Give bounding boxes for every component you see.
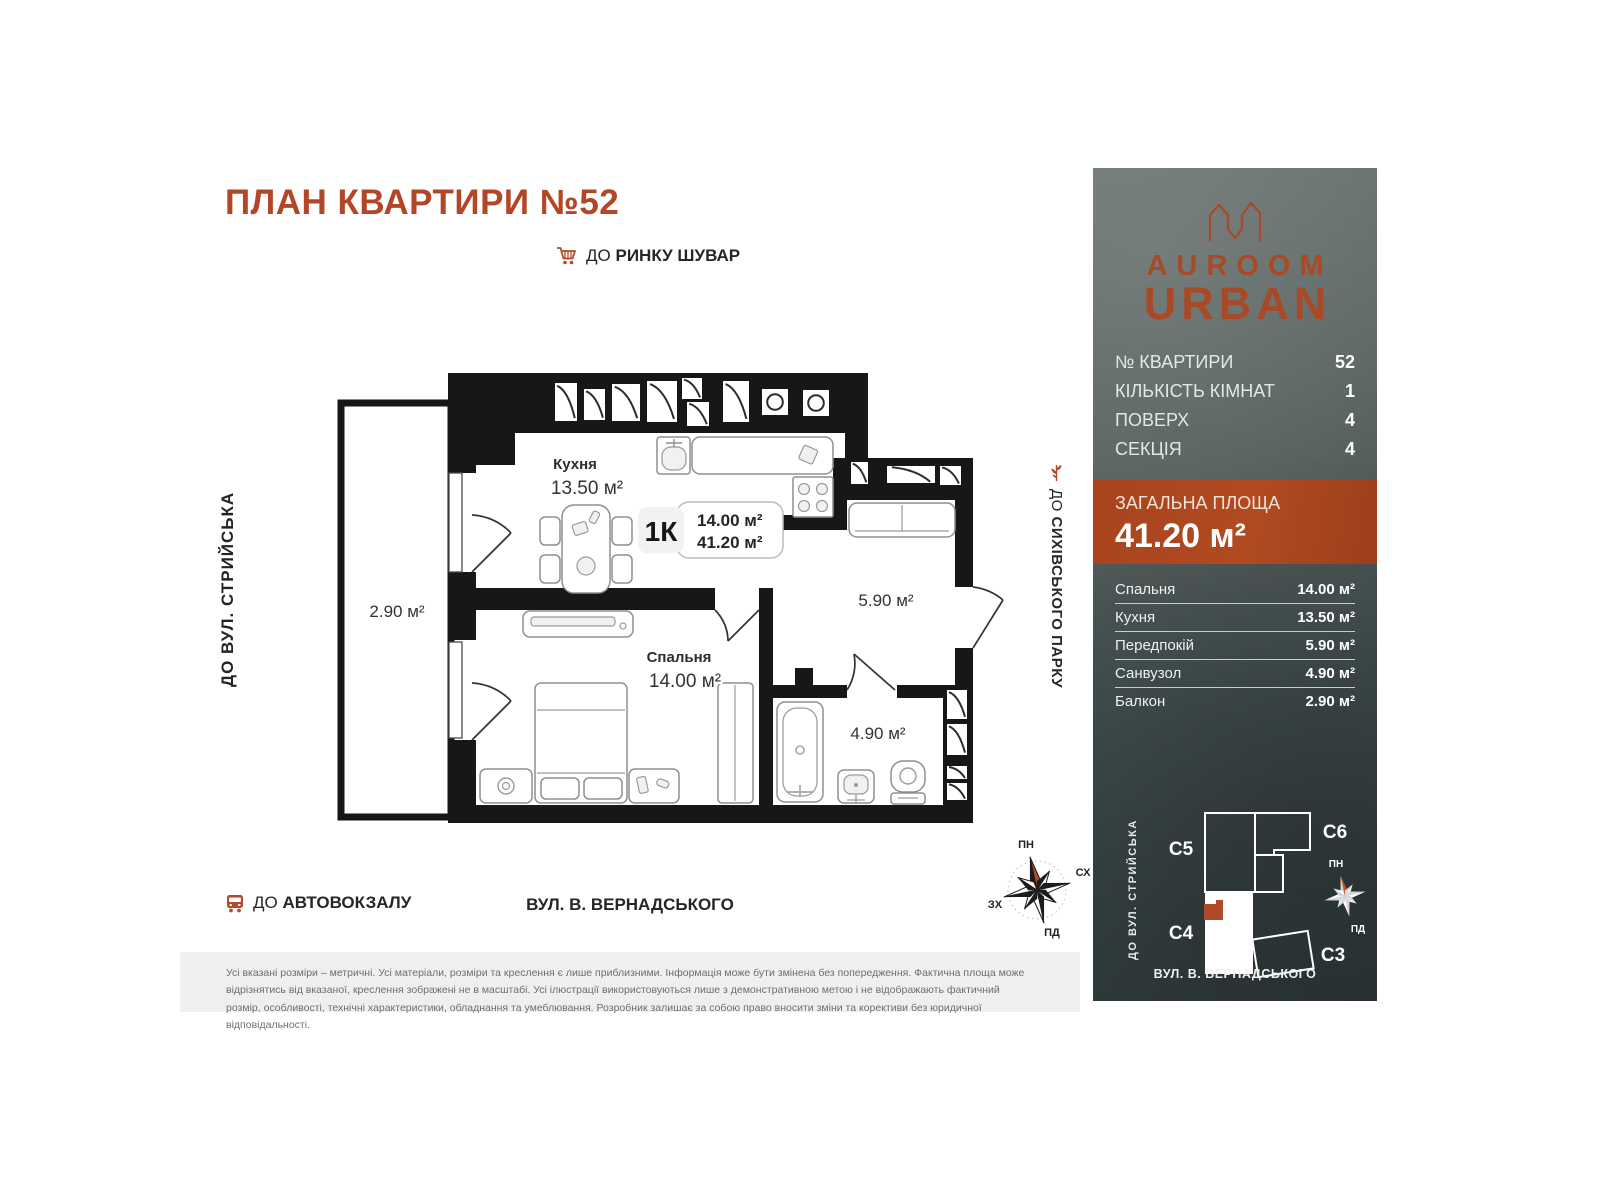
info-label: СЕКЦІЯ [1115, 439, 1182, 460]
kitchen-label: Кухня [553, 456, 597, 473]
floor-plan: 1К 14.00 м² 41.20 м² Кухня 13.50 м² Спал… [335, 365, 1015, 850]
nightstand [629, 769, 679, 803]
room-value: 5.90 м² [1306, 637, 1355, 654]
bedroom-area-label: 14.00 м² [649, 671, 721, 692]
courtyard-shape [1255, 855, 1283, 892]
toilet [891, 761, 925, 792]
room-areas-list: Спальня14.00 м² Кухня13.50 м² Передпокій… [1115, 576, 1355, 715]
compass-south-label: ПД [1044, 927, 1060, 939]
room-row: Спальня14.00 м² [1115, 576, 1355, 604]
bathroom-furniture [777, 702, 925, 804]
sitemap-compass-north: ПН [1329, 859, 1343, 870]
entrance-door [973, 600, 1003, 648]
direction-park: ДО СИХІВСЬКОГО ПАРКУ [1048, 462, 1065, 688]
info-label: ПОВЕРХ [1115, 410, 1189, 431]
info-row-floor: ПОВЕРХ4 [1115, 410, 1355, 439]
pillow [541, 778, 579, 799]
room-row: Кухня13.50 м² [1115, 604, 1355, 632]
room-label: Санвузол [1115, 665, 1181, 682]
total-area-band: ЗАГАЛЬНА ПЛОЩА 41.20 м² [1093, 480, 1377, 564]
street-label-bottom: ВУЛ. В. ВЕРНАДСЬКОГО [470, 895, 790, 915]
brand-name-bottom: URBAN [1093, 278, 1377, 330]
compass-east-label: СХ [1076, 867, 1092, 879]
sitemap-compass-south: ПД [1351, 924, 1365, 935]
room-label: Кухня [1115, 609, 1155, 626]
section-c6-label: C6 [1323, 822, 1347, 843]
info-value: 1 [1345, 381, 1355, 402]
direction-bus-name: АВТОВОКЗАЛУ [282, 893, 411, 912]
chair [540, 555, 560, 583]
pillow [584, 778, 622, 799]
direction-market: ДО РИНКУ ШУВАР [556, 246, 740, 266]
total-area-label: ЗАГАЛЬНА ПЛОЩА [1115, 493, 1355, 514]
info-label: КІЛЬКІСТЬ КІМНАТ [1115, 381, 1275, 402]
direction-bus: ДО АВТОВОКЗАЛУ [225, 893, 411, 913]
leaf-icon [1049, 462, 1064, 482]
bath-area-label: 4.90 м² [850, 724, 905, 743]
bus-icon [225, 894, 245, 913]
site-map: C5 C6 C4 C3 ПН ПД [1093, 808, 1377, 988]
room-value: 2.90 м² [1306, 693, 1355, 710]
bedroom-furniture [480, 611, 753, 803]
room-row: Передпокій5.90 м² [1115, 632, 1355, 660]
info-value: 4 [1345, 410, 1355, 431]
nightstand [480, 769, 532, 803]
room-row: Балкон2.90 м² [1115, 688, 1355, 715]
kitchen-area-label: 13.50 м² [551, 478, 623, 499]
hall-furniture [849, 503, 955, 537]
room-row: Санвузол4.90 м² [1115, 660, 1355, 688]
street-label-left: ДО ВУЛ. СТРИЙСЬКА [218, 502, 238, 687]
plan-type-badge: 1К [645, 516, 679, 547]
total-area-value: 41.20 м² [1115, 517, 1355, 556]
compass-rose: ПН СХ ЗХ ПД [982, 826, 1097, 941]
cart-icon [556, 246, 578, 266]
apartment-badge: 1К 14.00 м² 41.20 м² [638, 502, 783, 558]
bedroom-balcony-door [472, 701, 511, 740]
kitchen-balcony-door [472, 533, 511, 572]
direction-market-name: РИНКУ ШУВАР [615, 246, 740, 265]
direction-market-prefix: ДО [586, 246, 611, 265]
sitemap-street-bottom: ВУЛ. В. ВЕРНАДСЬКОГО [1093, 967, 1377, 981]
chair [540, 517, 560, 545]
plan-living-area: 14.00 м² [697, 511, 763, 530]
compass-west-label: ЗХ [988, 899, 1003, 911]
room-value: 13.50 м² [1297, 609, 1355, 626]
auroom-logo-icon [1203, 196, 1267, 244]
chair [612, 517, 632, 545]
room-label: Передпокій [1115, 637, 1194, 654]
info-row-section: СЕКЦІЯ4 [1115, 439, 1355, 468]
stove [793, 477, 833, 517]
apartment-info: № КВАРТИРИ52 КІЛЬКІСТЬ КІМНАТ1 ПОВЕРХ4 С… [1115, 352, 1355, 468]
info-row-rooms: КІЛЬКІСТЬ КІМНАТ1 [1115, 381, 1355, 410]
chair [612, 555, 632, 583]
entrance-opening [955, 587, 973, 648]
direction-park-prefix: ДО [1048, 489, 1065, 512]
info-row-number: № КВАРТИРИ52 [1115, 352, 1355, 381]
section-c6-shape [1255, 813, 1310, 855]
dining-table [562, 505, 610, 593]
info-label: № КВАРТИРИ [1115, 352, 1233, 373]
info-panel: AUROOM URBAN № КВАРТИРИ52 КІЛЬКІСТЬ КІМН… [1093, 168, 1377, 1001]
section-c3-label: C3 [1321, 945, 1345, 966]
room-label: Балкон [1115, 693, 1165, 710]
direction-park-name: СИХІВСЬКОГО ПАРКУ [1048, 517, 1065, 689]
hall-area-label: 5.90 м² [858, 591, 913, 610]
room-value: 14.00 м² [1297, 581, 1355, 598]
disclaimer-text: Усі вказані розміри – метричні. Усі мате… [180, 952, 1080, 1012]
section-c5-shape [1205, 813, 1255, 892]
bedroom-door [728, 610, 759, 641]
info-value: 4 [1345, 439, 1355, 460]
compass-north-label: ПН [1018, 839, 1034, 851]
sitemap-compass [1320, 871, 1370, 921]
bathroom-door [854, 654, 895, 690]
plan-total-area: 41.20 м² [697, 533, 763, 552]
info-value: 52 [1335, 352, 1355, 373]
section-c4-label: C4 [1169, 923, 1194, 944]
direction-bus-prefix: ДО [253, 893, 278, 912]
section-c5-label: C5 [1169, 839, 1194, 860]
room-value: 4.90 м² [1306, 665, 1355, 682]
balcony-area-label: 2.90 м² [369, 602, 424, 621]
room-label: Спальня [1115, 581, 1175, 598]
page-title: ПЛАН КВАРТИРИ №52 [225, 183, 619, 223]
bedroom-label: Спальня [647, 649, 712, 666]
